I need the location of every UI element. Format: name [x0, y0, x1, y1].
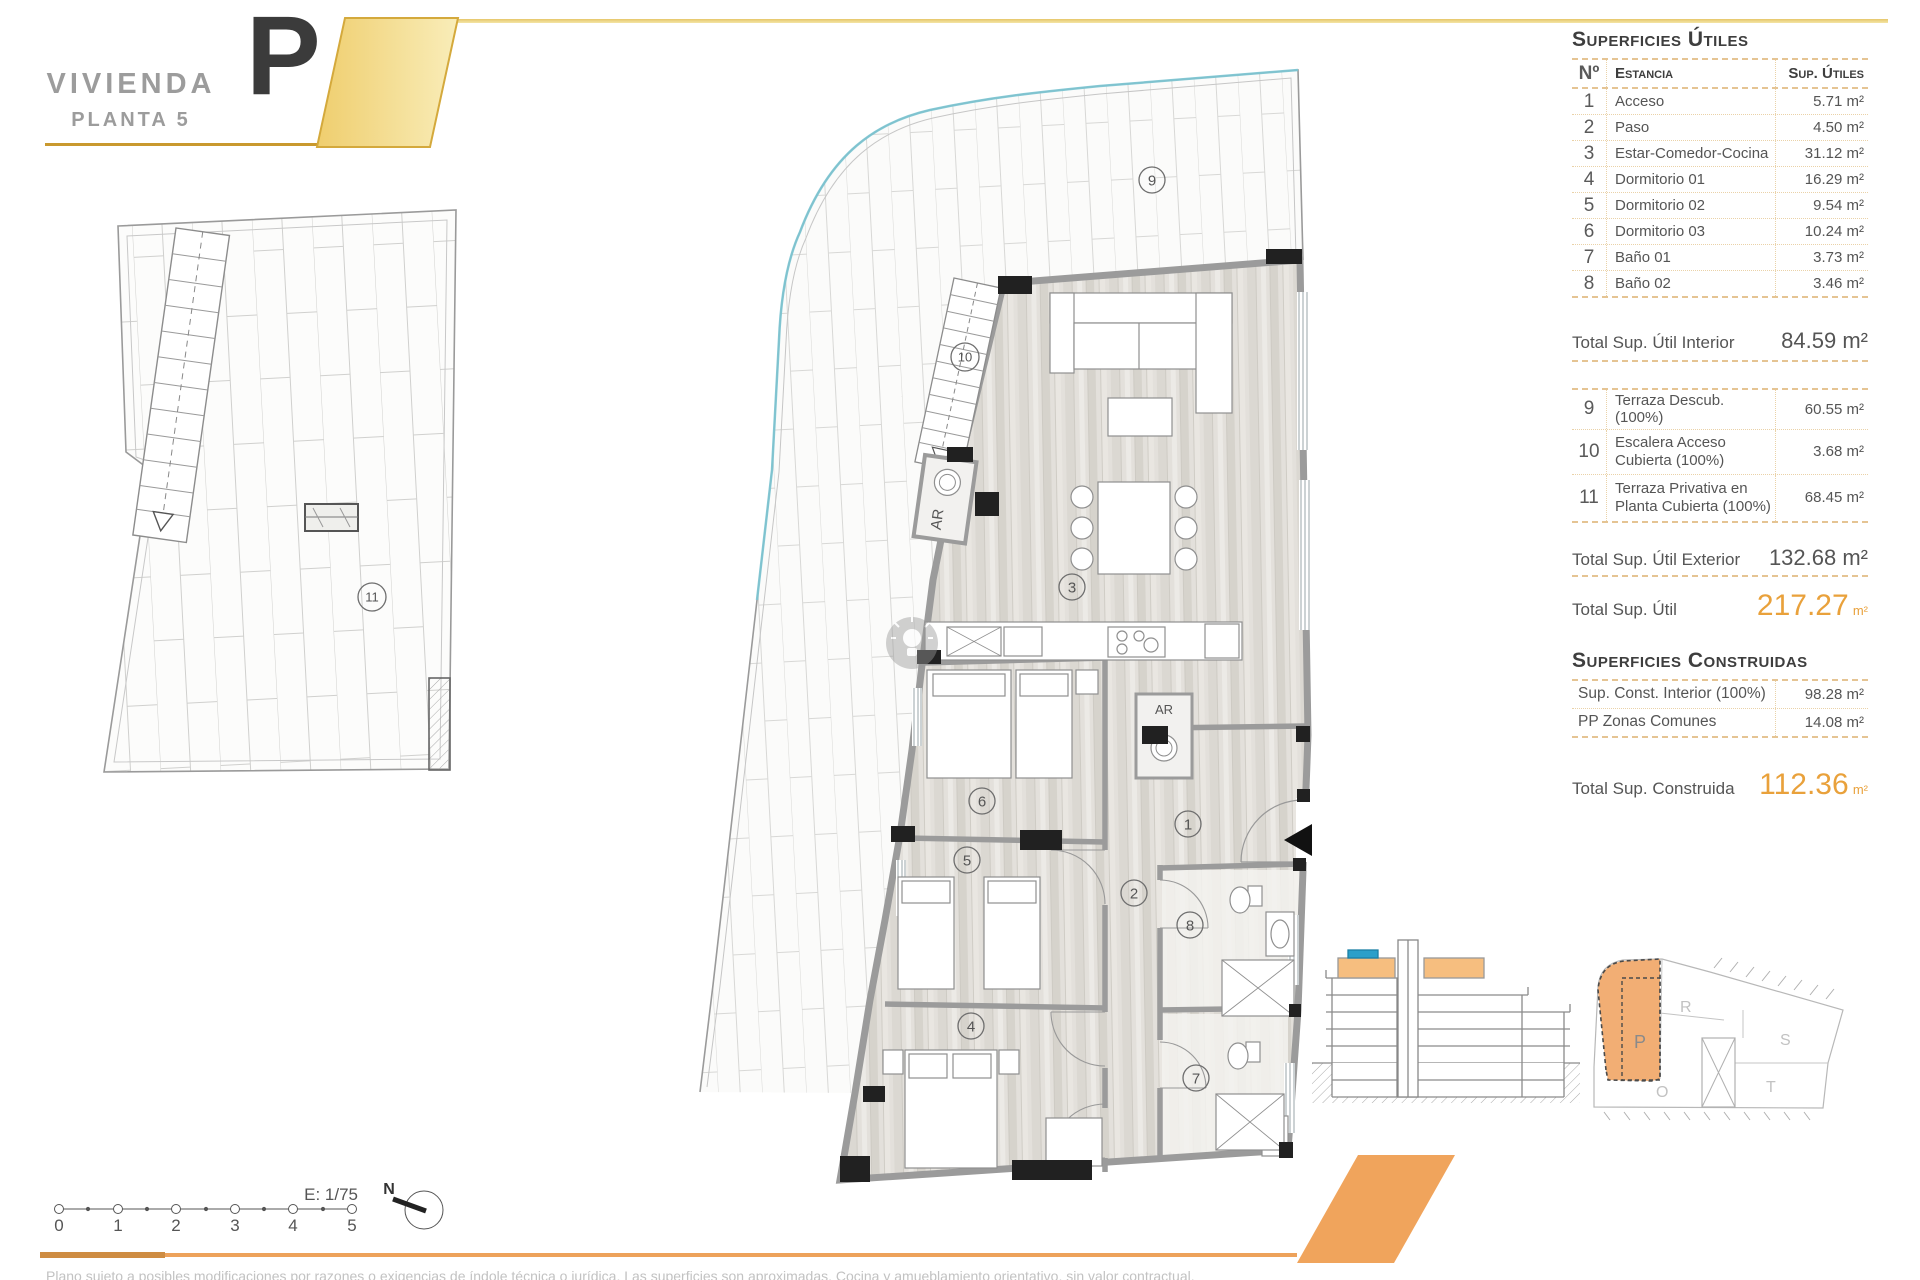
table-row: 9 Terraza Descub.(100%) 60.55 m² [1572, 390, 1868, 430]
building-section-diagram [1312, 940, 1580, 1103]
total-construida: Total Sup. Construida 112.36 m² [1572, 768, 1868, 802]
utiles-table-header: Nº Estancia Sup. Útiles [1572, 60, 1868, 89]
terrace-planter [429, 678, 450, 770]
room-number-11: 11 [365, 590, 379, 605]
kitchen [925, 622, 1242, 660]
row-room: Acceso [1607, 91, 1775, 112]
row-area: 3.46 m² [1775, 271, 1868, 296]
total-interior-label: Total Sup. Útil Interior [1572, 333, 1735, 353]
exterior-table: 9 Terraza Descub.(100%) 60.55 m² 10 Esca… [1572, 388, 1868, 523]
total-util-unit: m² [1853, 603, 1868, 618]
room-number-4: 4 [967, 1018, 975, 1035]
table-row: Sup. Const. Interior (100%) 98.28 m² [1572, 681, 1868, 709]
section-highlighted-floor [1424, 958, 1484, 978]
total-construida-value: 112.36 [1759, 768, 1849, 801]
ar-label-2: AR [1155, 702, 1173, 717]
table-row: 10 Escalera Acceso Cubierta (100%) 3.68 … [1572, 430, 1868, 475]
dining-set [1071, 482, 1197, 574]
row-num: 8 [1572, 271, 1607, 296]
construidas-title: Superficies Construidas [1572, 649, 1868, 673]
orange-slash-decoration [1297, 1155, 1455, 1263]
total-exterior: Total Sup. Útil Exterior 132.68 m² [1572, 545, 1868, 571]
row-value: 98.28 m² [1775, 681, 1868, 708]
total-construida-label: Total Sup. Construida [1572, 779, 1735, 799]
row-num: 5 [1572, 193, 1607, 218]
row-num: 10 [1572, 430, 1607, 474]
plan-sheet: VIVIENDA PLANTA 5 P [0, 0, 1920, 1280]
row-num: 4 [1572, 167, 1607, 192]
utiles-title: Superficies Útiles [1572, 28, 1868, 52]
row-room: Paso [1607, 117, 1775, 138]
row-area: 9.54 m² [1775, 193, 1868, 218]
row-label: Sup. Const. Interior (100%) [1572, 685, 1766, 703]
terrace-skylight [305, 504, 358, 531]
total-exterior-label: Total Sup. Útil Exterior [1572, 550, 1740, 570]
scale-tick-3: 3 [230, 1216, 239, 1235]
roof-terrace-plan: 11 [104, 210, 456, 772]
site-label-r: R [1680, 999, 1692, 1016]
room-number-1: 1 [1184, 816, 1192, 833]
room-number-5: 5 [963, 852, 971, 869]
row-num: 9 [1572, 390, 1607, 429]
row-area: 31.12 m² [1775, 141, 1868, 166]
ar-label-1: AR [928, 508, 948, 531]
room-number-8: 8 [1186, 917, 1194, 934]
row-area: 68.45 m² [1775, 475, 1868, 521]
row-room: Dormitorio 01 [1607, 169, 1775, 190]
total-util: Total Sup. Útil 217.27 m² [1572, 589, 1868, 623]
table-row: 7 Baño 01 3.73 m² [1572, 245, 1868, 271]
room-number-3: 3 [1068, 579, 1076, 596]
scale-tick-2: 2 [171, 1216, 180, 1235]
row-room: Estar-Comedor-Cocina [1607, 143, 1775, 164]
row-room: Baño 02 [1607, 273, 1775, 294]
room-number-6: 6 [978, 793, 986, 810]
scale-bar: 0 1 2 3 4 5 E: 1/75 [54, 1185, 358, 1235]
yellow-slash-decoration [317, 18, 458, 147]
areas-panel: Superficies Útiles Nº Estancia Sup. Útil… [1572, 28, 1868, 802]
site-unit-p-highlight [1598, 959, 1660, 1081]
site-label-t: T [1766, 1079, 1776, 1096]
room-number-10: 10 [958, 350, 972, 365]
table-row: 5 Dormitorio 02 9.54 m² [1572, 193, 1868, 219]
bottom-orange-rule-cap [40, 1252, 165, 1258]
disclaimer-text: Plano sujeto a posibles modificaciones p… [46, 1268, 1195, 1280]
watermark-lightbulb [886, 617, 938, 669]
row-label: PP Zonas Comunes [1572, 713, 1716, 731]
scale-tick-5: 5 [347, 1216, 356, 1235]
north-arrow: N [383, 1181, 443, 1229]
scale-tick-1: 1 [113, 1216, 122, 1235]
row-num: 2 [1572, 115, 1607, 140]
bottom-orange-rule [40, 1253, 1297, 1257]
total-construida-unit: m² [1853, 782, 1868, 797]
row-area: 4.50 m² [1775, 115, 1868, 140]
site-key-plan: P R S T O [1594, 958, 1843, 1120]
row-num: 7 [1572, 245, 1607, 270]
table-row: 2 Paso 4.50 m² [1572, 115, 1868, 141]
col-area: Sup. Útiles [1775, 60, 1868, 87]
table-row: 11 Terraza Privativa en Planta Cubierta … [1572, 475, 1868, 521]
total-util-value: 217.27 [1757, 589, 1849, 622]
table-row: 1 Acceso 5.71 m² [1572, 89, 1868, 115]
row-area: 5.71 m² [1775, 89, 1868, 114]
row-num: 6 [1572, 219, 1607, 244]
total-exterior-value: 132.68 m² [1769, 545, 1868, 571]
construidas-table: Sup. Const. Interior (100%) 98.28 m² PP … [1572, 679, 1868, 738]
scale-ratio-label: E: 1/75 [304, 1185, 358, 1204]
scale-tick-4: 4 [288, 1216, 297, 1235]
row-room: Escalera Acceso Cubierta (100%) [1607, 432, 1775, 471]
col-num: Nº [1572, 60, 1607, 87]
north-label: N [383, 1181, 395, 1198]
section-pool [1348, 950, 1378, 958]
table-row: 8 Baño 02 3.46 m² [1572, 271, 1868, 296]
table-row: PP Zonas Comunes 14.08 m² [1572, 709, 1868, 736]
site-label-s: S [1780, 1032, 1791, 1049]
site-label-p: P [1634, 1032, 1646, 1052]
row-area: 60.55 m² [1775, 390, 1868, 429]
row-room: Terraza Descub.(100%) [1607, 390, 1775, 429]
table-row: 4 Dormitorio 01 16.29 m² [1572, 167, 1868, 193]
total-util-label: Total Sup. Útil [1572, 600, 1677, 620]
site-label-o: O [1656, 1084, 1668, 1101]
row-area: 10.24 m² [1775, 219, 1868, 244]
table-row: 6 Dormitorio 03 10.24 m² [1572, 219, 1868, 245]
scale-tick-0: 0 [54, 1216, 63, 1235]
col-room: Estancia [1607, 63, 1775, 84]
room-number-9: 9 [1148, 172, 1156, 189]
row-room: Dormitorio 02 [1607, 195, 1775, 216]
room-number-7: 7 [1192, 1070, 1200, 1087]
utiles-table: Nº Estancia Sup. Útiles 1 Acceso 5.71 m²… [1572, 58, 1868, 298]
row-area: 3.73 m² [1775, 245, 1868, 270]
row-num: 1 [1572, 89, 1607, 114]
row-num: 3 [1572, 141, 1607, 166]
table-row: 3 Estar-Comedor-Cocina 31.12 m² [1572, 141, 1868, 167]
row-value: 14.08 m² [1775, 709, 1868, 736]
ar-closet-1: AR [914, 455, 977, 543]
total-interior: Total Sup. Útil Interior 84.59 m² [1572, 328, 1868, 354]
row-room: Baño 01 [1607, 247, 1775, 268]
row-num: 11 [1572, 475, 1607, 521]
row-room: Terraza Privativa en Planta Cubierta (10… [1607, 478, 1775, 517]
apartment-plan: AR AR [700, 70, 1312, 1182]
total-interior-value: 84.59 m² [1781, 328, 1868, 354]
row-room: Dormitorio 03 [1607, 221, 1775, 242]
room-number-2: 2 [1130, 885, 1138, 902]
row-area: 3.68 m² [1775, 430, 1868, 474]
row-area: 16.29 m² [1775, 167, 1868, 192]
